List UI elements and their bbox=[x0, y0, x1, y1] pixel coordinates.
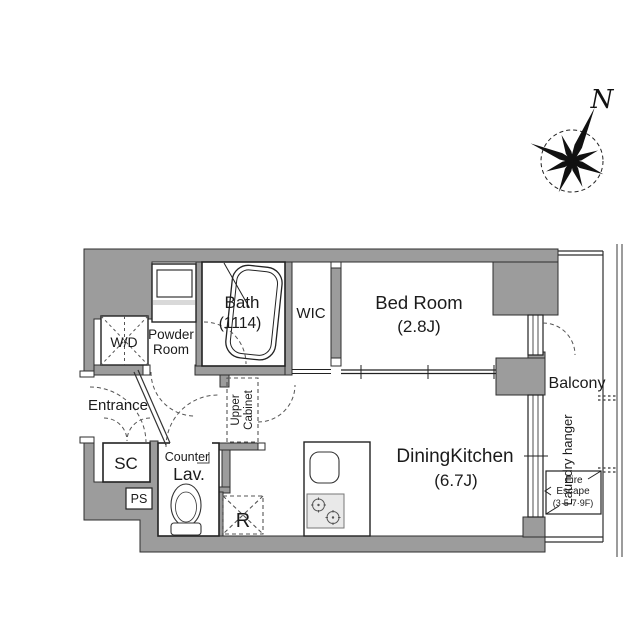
kitchen-sink-icon bbox=[310, 452, 339, 483]
wall-bottom-right-block bbox=[523, 517, 545, 537]
stove-icon bbox=[307, 494, 344, 528]
ps-label: PS bbox=[131, 492, 148, 506]
wall-corridor-top-a bbox=[94, 365, 143, 375]
bedroom-balcony-door bbox=[528, 315, 543, 355]
cap-wic-top bbox=[331, 262, 341, 268]
compass-north-label: N bbox=[590, 85, 615, 115]
sc-label: SC bbox=[114, 454, 138, 473]
wall-bath-wic bbox=[285, 262, 292, 375]
bedroom-label: Bed Room bbox=[375, 292, 462, 313]
bedroom-size-label: (2.8J) bbox=[397, 317, 440, 336]
wall-lav-right-upper bbox=[222, 450, 230, 492]
fire-escape-label-2: Escape bbox=[556, 486, 590, 497]
toilet-icon bbox=[171, 484, 201, 535]
dk-size-label: (6.7J) bbox=[434, 471, 477, 490]
fire-escape-label-3: (3·5·7·9F) bbox=[553, 498, 594, 508]
bath-label: Bath bbox=[225, 293, 260, 312]
refrigerator-label: R bbox=[236, 510, 250, 532]
lav-label: Lav. bbox=[173, 464, 205, 484]
floor-plan-canvas: N Bath (1114) WIC Bed Room (2.8J) Powder… bbox=[0, 0, 640, 640]
cap-wic-bottom bbox=[331, 358, 341, 366]
wall-top-right-chunk bbox=[493, 262, 558, 315]
kitchen-counter bbox=[304, 442, 370, 536]
dk-label: DiningKitchen bbox=[396, 446, 513, 467]
entrance-label: Entrance bbox=[88, 397, 148, 414]
wall-wic-bedroom bbox=[331, 268, 341, 358]
cap-entrance-top bbox=[80, 371, 94, 377]
cap-corridor bbox=[143, 365, 150, 375]
vanity-sink-icon bbox=[152, 264, 196, 322]
bath-size-label: (1114) bbox=[219, 315, 262, 332]
cap-entrance-bottom bbox=[80, 437, 94, 443]
powder-room-label-1: Powder bbox=[148, 327, 194, 342]
wall-powder-bath bbox=[196, 262, 202, 366]
upper-cabinet-label-2: Cabinet bbox=[243, 389, 255, 429]
powder-room-label-2: Room bbox=[153, 342, 189, 357]
wall-stub-top bbox=[220, 375, 229, 387]
upper-cabinet-label-1: Upper bbox=[230, 394, 242, 425]
cap-cabinet-wall bbox=[258, 443, 265, 450]
fire-escape-label-1: Fire bbox=[565, 475, 583, 486]
wic-label: WIC bbox=[296, 305, 325, 322]
counter-label: Counter bbox=[165, 450, 209, 464]
floor-plan: N Bath (1114) WIC Bed Room (2.8J) Powder… bbox=[0, 0, 640, 640]
wd-label: W/D bbox=[110, 334, 137, 350]
balcony-label: Balcony bbox=[549, 375, 606, 392]
wall-junction-block bbox=[496, 358, 545, 395]
